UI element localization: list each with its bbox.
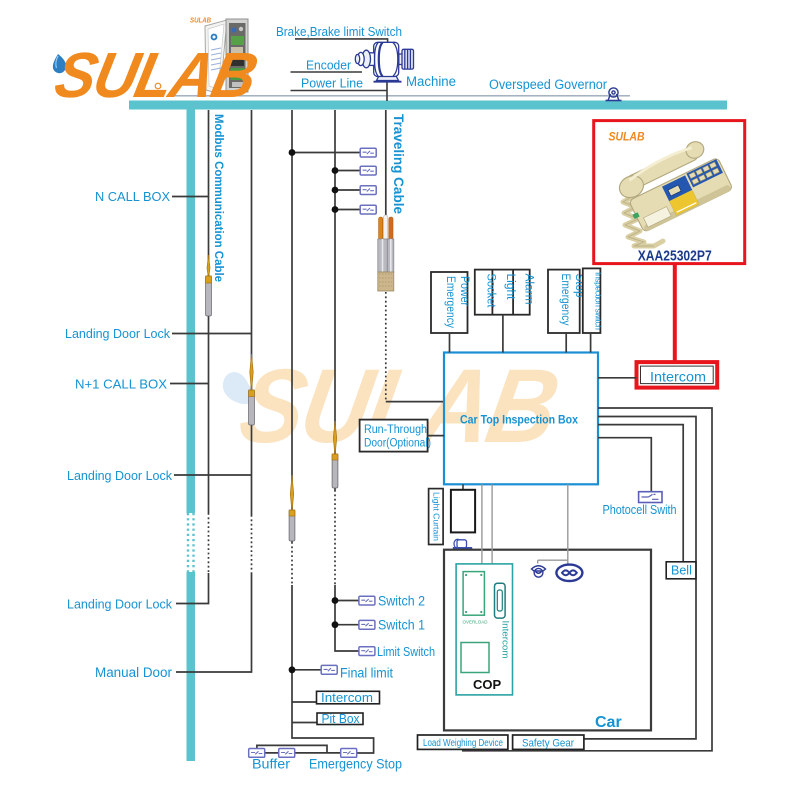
svg-text:Door(Optional): Door(Optional)	[364, 438, 431, 450]
svg-text:N CALL BOX: N CALL BOX	[95, 189, 170, 204]
svg-text:Light: Light	[504, 274, 516, 301]
svg-text:Switch 1: Switch 1	[378, 618, 425, 633]
svg-text:SULAB: SULAB	[609, 130, 645, 144]
svg-text:SULAB: SULAB	[49, 39, 263, 111]
svg-text:Manual Door: Manual Door	[95, 665, 172, 680]
svg-text:Pit Box: Pit Box	[322, 712, 361, 726]
svg-text:Photocell Swith: Photocell Swith	[603, 503, 677, 517]
svg-text:Brake,Brake limit Switch: Brake,Brake limit Switch	[276, 25, 402, 39]
svg-text:Machine: Machine	[406, 74, 456, 89]
svg-text:Intercom: Intercom	[321, 691, 373, 705]
svg-text:Car: Car	[595, 714, 622, 731]
svg-text:Power Line: Power Line	[301, 76, 363, 91]
svg-text:OVERLOAD: OVERLOAD	[463, 620, 489, 625]
svg-text:Inspection switch: Inspection switch	[594, 272, 604, 330]
svg-text:Switch 2: Switch 2	[378, 594, 425, 609]
svg-text:Run-Through: Run-Through	[364, 424, 427, 436]
svg-text:Intercom: Intercom	[650, 369, 706, 385]
svg-text:N+1 CALL BOX: N+1 CALL BOX	[75, 377, 167, 392]
svg-text:Encoder: Encoder	[306, 58, 352, 73]
svg-text:XAA25302P7: XAA25302P7	[638, 249, 712, 265]
svg-text:Safety Gear: Safety Gear	[522, 738, 574, 750]
svg-text:Landing Door Lock: Landing Door Lock	[67, 597, 172, 612]
svg-text:Final limit: Final limit	[340, 666, 393, 681]
svg-text:Bell: Bell	[671, 564, 692, 578]
svg-text:Traveling Cable: Traveling Cable	[391, 114, 406, 214]
svg-text:Landing Door Lock: Landing Door Lock	[67, 468, 172, 483]
svg-text:Socket: Socket	[485, 274, 497, 309]
svg-text:Intercom: Intercom	[501, 621, 511, 659]
svg-text:Emergency: Emergency	[444, 276, 456, 328]
svg-text:Buffer: Buffer	[252, 756, 290, 772]
svg-text:Limit Switch: Limit Switch	[377, 645, 435, 659]
svg-text:Load Weighing Device: Load Weighing Device	[423, 738, 503, 749]
svg-text:Power: Power	[458, 276, 470, 306]
svg-text:Modbus Communication Cable: Modbus Communication Cable	[212, 114, 224, 282]
svg-text:Car Top Inspection Box: Car Top Inspection Box	[460, 413, 578, 427]
svg-text:Landing Door Lock: Landing Door Lock	[65, 326, 170, 341]
svg-text:SULAB: SULAB	[190, 16, 211, 25]
svg-text:Light Curtain: Light Curtain	[432, 492, 442, 541]
svg-text:Overspeed Governor: Overspeed Governor	[489, 77, 607, 92]
svg-text:Emergency Stop: Emergency Stop	[309, 756, 402, 772]
svg-text:Alarm: Alarm	[523, 274, 535, 305]
svg-text:Emergency: Emergency	[559, 274, 571, 326]
svg-text:COP: COP	[473, 677, 502, 692]
